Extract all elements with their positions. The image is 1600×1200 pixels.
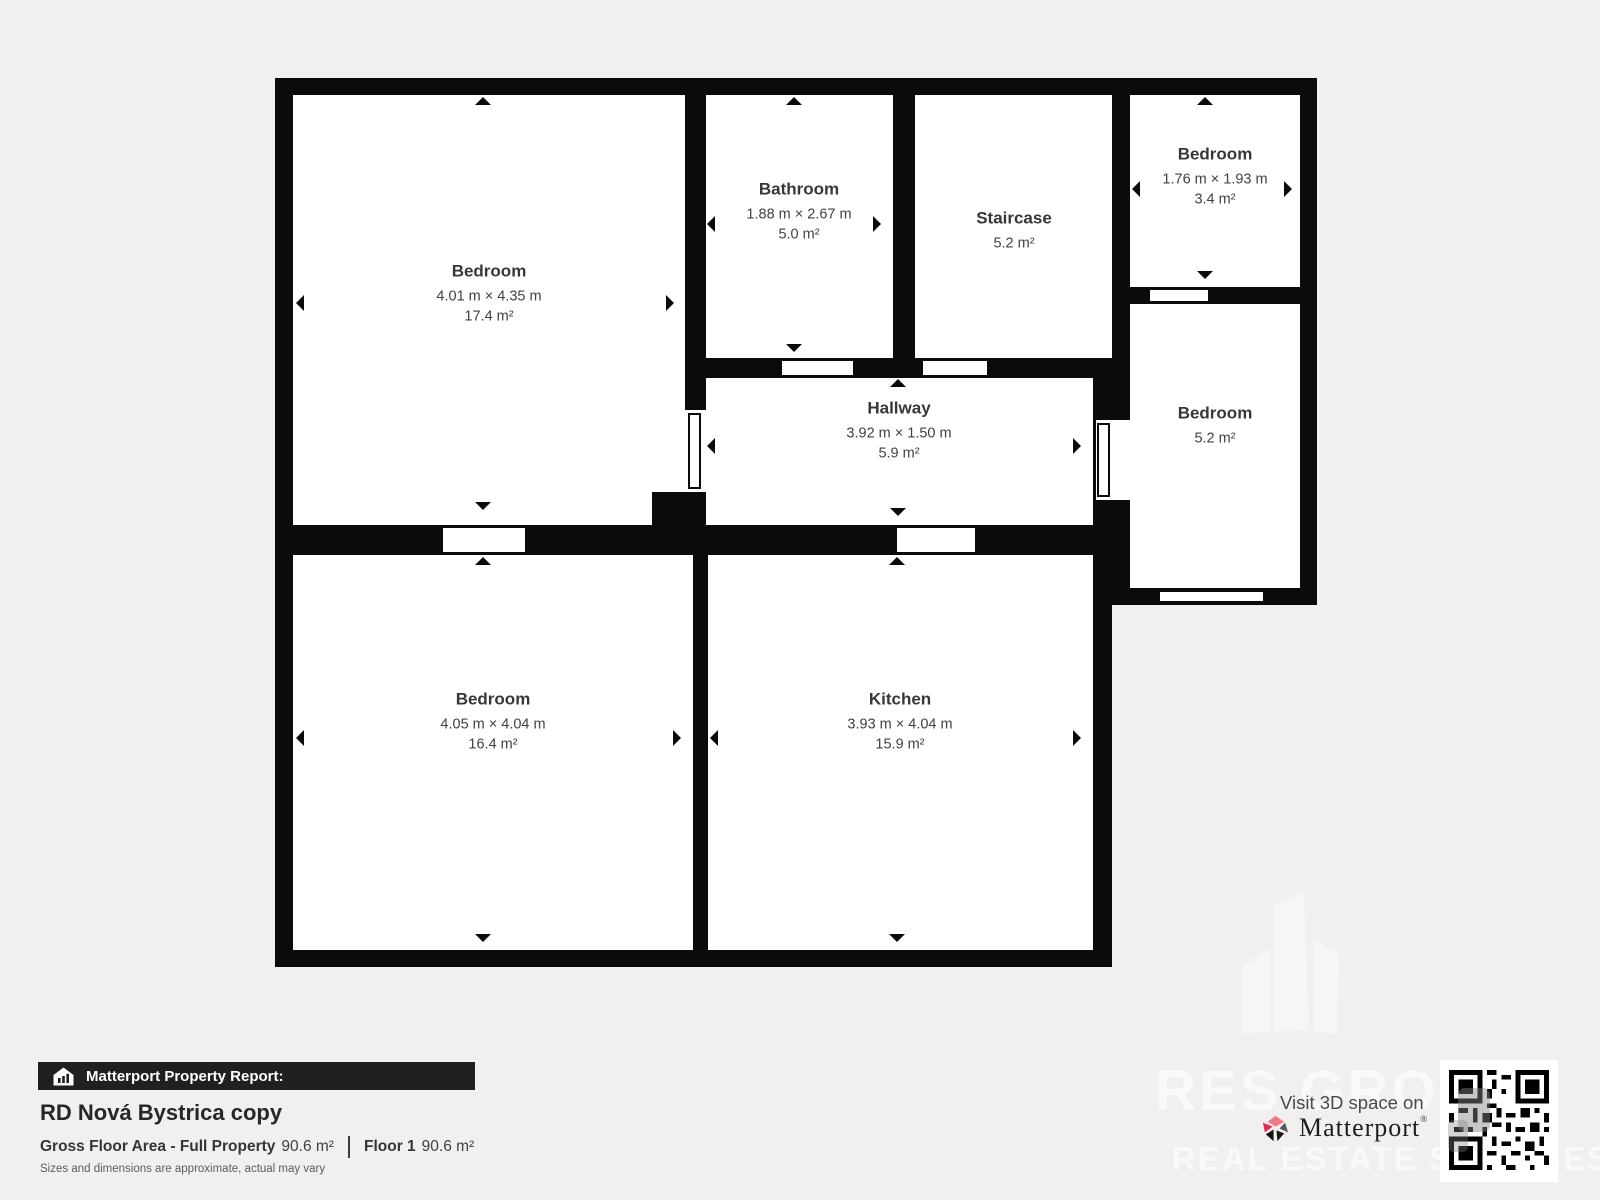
room-label-bedroom-bottom-left: Bedroom 4.05 m × 4.04 m 16.4 m² [440, 690, 545, 755]
door-bathroom [782, 361, 853, 375]
dimension-arrow [673, 730, 681, 746]
room-label-hallway: Hallway 3.92 m × 1.50 m 5.9 m² [846, 399, 951, 464]
room-area: 5.0 m² [746, 225, 851, 245]
room-label-kitchen: Kitchen 3.93 m × 4.04 m 15.9 m² [847, 690, 952, 755]
gross-floor-area-value: 90.6 m² [281, 1138, 334, 1156]
dimension-arrow [707, 438, 715, 454]
dimension-arrow [707, 216, 715, 232]
house-chart-icon [53, 1067, 74, 1086]
room-name: Bathroom [746, 180, 851, 200]
report-header-bar: Matterport Property Report: [38, 1062, 475, 1090]
floor-area-summary: Gross Floor Area - Full Property 90.6 m²… [40, 1136, 474, 1158]
room-label-bedroom-top-right: Bedroom 1.76 m × 1.93 m 3.4 m² [1162, 145, 1267, 210]
room-dimensions: 3.92 m × 1.50 m [846, 424, 951, 444]
floor-label: Floor 1 [364, 1138, 416, 1156]
room-dimensions: 1.88 m × 2.67 m [746, 205, 851, 225]
room-label-bedroom-right: Bedroom 5.2 m² [1178, 404, 1253, 449]
room-name: Bedroom [1162, 145, 1267, 165]
room-name: Bedroom [1178, 404, 1253, 424]
dimension-arrow [1284, 181, 1292, 197]
dimension-arrow [1073, 438, 1081, 454]
dimension-arrow [1132, 181, 1140, 197]
wall-notch [652, 492, 685, 525]
room-label-bedroom-top-left: Bedroom 4.01 m × 4.35 m 17.4 m² [436, 262, 541, 327]
matterport-logo-icon [1261, 1114, 1290, 1143]
dimension-arrow [475, 97, 491, 105]
dimension-arrow [786, 97, 802, 105]
trademark-symbol: ® [1420, 1114, 1428, 1124]
room-dimensions: 4.05 m × 4.04 m [440, 715, 545, 735]
matterport-brand: Matterport® [1261, 1113, 1428, 1143]
dimension-arrow [475, 557, 491, 565]
dimension-arrow [296, 730, 304, 746]
floor-value: 90.6 m² [422, 1138, 475, 1156]
dimension-arrow [710, 730, 718, 746]
dimension-arrow [1073, 730, 1081, 746]
room-name: Kitchen [847, 690, 952, 710]
qr-code [1440, 1060, 1558, 1182]
room-dimensions: 1.76 m × 1.93 m [1162, 170, 1267, 190]
door-hallway-bedroom-right-leaf [1097, 423, 1110, 497]
door-bedroom-hallway-leaf [688, 413, 701, 489]
qr-watermark-smudge [1448, 1120, 1468, 1152]
room-label-bathroom: Bathroom 1.88 m × 2.67 m 5.0 m² [746, 180, 851, 245]
dimension-arrow [890, 508, 906, 516]
dimension-arrow [786, 344, 802, 352]
dimension-arrow [890, 379, 906, 387]
room-name: Bedroom [436, 262, 541, 282]
watermark-logo-shape [1212, 884, 1382, 1049]
room-area: 5.2 m² [1178, 429, 1253, 449]
dimension-arrow [475, 934, 491, 942]
room-area: 16.4 m² [440, 735, 545, 755]
window-bedroom-right [1160, 592, 1263, 601]
dimension-arrow [296, 295, 304, 311]
room-dimensions: 4.01 m × 4.35 m [436, 287, 541, 307]
room-name: Staircase [976, 209, 1052, 229]
room-area: 15.9 m² [847, 735, 952, 755]
property-report-page: RES GROUP REAL ESTATE SERVICES [0, 0, 1600, 1200]
property-title: RD Nová Bystrica copy [40, 1100, 282, 1126]
gross-floor-area-label: Gross Floor Area - Full Property [40, 1138, 275, 1156]
room-area: 3.4 m² [1162, 190, 1267, 210]
door-hallway-kitchen [897, 528, 975, 552]
disclaimer-text: Sizes and dimensions are approximate, ac… [40, 1163, 325, 1175]
dimension-arrow [889, 557, 905, 565]
dimension-arrow [873, 216, 881, 232]
dimension-arrow [889, 934, 905, 942]
door-bedroom-top-right [1150, 290, 1208, 301]
room-area: 5.2 m² [976, 234, 1052, 254]
door-bedrooms-left [443, 528, 525, 552]
room-name: Hallway [846, 399, 951, 419]
matterport-wordmark: Matterport® [1299, 1113, 1428, 1143]
dimension-arrow [1197, 97, 1213, 105]
room-dimensions: 3.93 m × 4.04 m [847, 715, 952, 735]
room-name: Bedroom [440, 690, 545, 710]
dimension-arrow [475, 502, 491, 510]
dimension-arrow [666, 295, 674, 311]
room-label-staircase: Staircase 5.2 m² [976, 209, 1052, 254]
divider [348, 1136, 350, 1158]
visit-3d-label: Visit 3D space on [1280, 1092, 1424, 1114]
room-area: 5.9 m² [846, 444, 951, 464]
dimension-arrow [1197, 271, 1213, 279]
room-area: 17.4 m² [436, 307, 541, 327]
report-bar-label: Matterport Property Report: [86, 1068, 284, 1085]
door-staircase [923, 361, 987, 375]
